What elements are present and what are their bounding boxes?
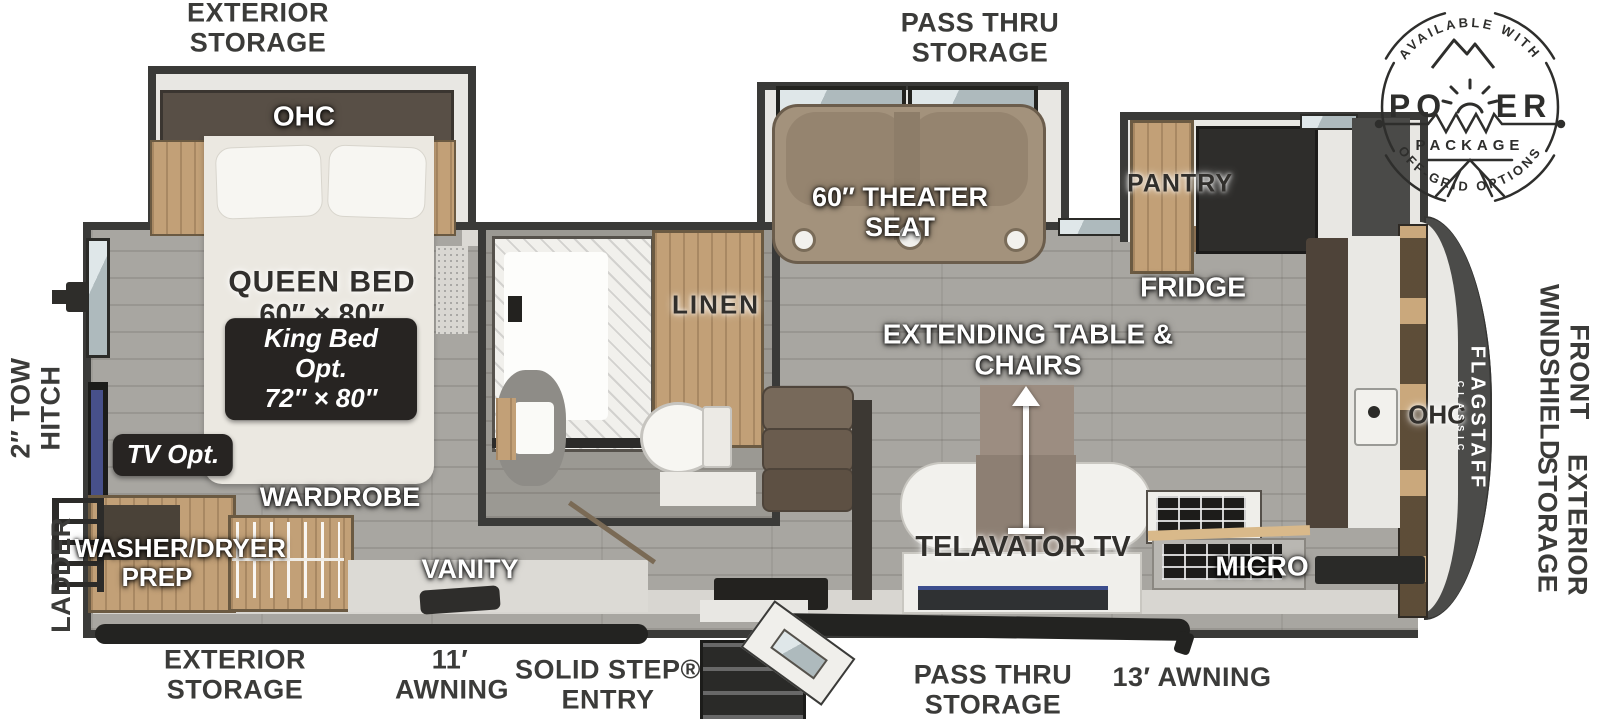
shower-head-icon — [508, 296, 522, 322]
nightstand-left — [150, 140, 208, 236]
vanity-label: VANITY — [421, 554, 518, 584]
floorplan-canvas: OHC QUEEN BED 60″ × 80″ King Bed Opt. 72… — [0, 0, 1600, 719]
bedroom-window — [86, 238, 110, 358]
svg-text:AVAILABLE WITH: AVAILABLE WITH — [1396, 15, 1545, 62]
extending-table-label: EXTENDING TABLE & CHAIRS — [868, 319, 1188, 382]
front-section-window — [1300, 114, 1358, 130]
linen-label: LINEN — [672, 291, 760, 320]
micro-label: MICRO — [1215, 550, 1308, 581]
awning-13-label: 13′ AWNING — [1072, 663, 1312, 693]
kitchen-counter-dark — [1306, 238, 1352, 528]
tow-hitch-label: 2″ TOW HITCH — [6, 348, 65, 468]
awning-11-label: 11′ AWNING — [395, 645, 505, 704]
brand-series: CLASSIC — [1456, 346, 1466, 490]
mountains-icon — [1432, 40, 1494, 68]
awning-bar-left — [95, 624, 648, 644]
toilet-tank — [702, 406, 732, 468]
theater-seat-label: 60″ THEATER SEAT — [775, 182, 1025, 242]
kitchen-window — [1058, 218, 1124, 236]
tow-hitch-stub — [52, 290, 70, 304]
pantry-label: PANTRY — [1127, 170, 1233, 198]
exterior-storage-top-label: EXTERIOR STORAGE — [168, 0, 348, 58]
sun-icon — [1443, 80, 1497, 112]
brand-block: FLAGSTAFF CLASSIC — [1456, 346, 1489, 490]
ohc-bedroom-label: OHC — [273, 100, 335, 131]
badge-word-left: PO — [1389, 88, 1447, 124]
toilet-bench — [660, 472, 756, 506]
kitchen-counter-white — [1348, 236, 1400, 528]
bedroom-rug — [436, 246, 468, 334]
ladder-label: LADDER — [47, 505, 77, 645]
badge-word-right: ER — [1496, 88, 1552, 124]
king-bed-option-badge: King Bed Opt. 72″ × 80″ — [225, 318, 417, 420]
stair-step-2 — [762, 428, 854, 472]
extend-arrow-head — [1012, 386, 1040, 406]
telavator-tv-screen — [918, 586, 1108, 610]
pass-thru-top-label: PASS THRU STORAGE — [880, 8, 1080, 67]
kitchen-faucet-icon — [1368, 406, 1380, 418]
tv-option-badge: TV Opt. — [113, 434, 233, 476]
brand-name: FLAGSTAFF — [1466, 346, 1489, 490]
stair-step-1 — [762, 386, 854, 432]
queen-bed-label: QUEEN BED — [228, 266, 415, 299]
pillow-left — [215, 144, 323, 220]
bedroom-tv-screen — [91, 390, 103, 508]
washer-dryer-label: WASHER/DRYER PREP — [75, 534, 240, 592]
front-windshield-label: FRONT WINDSHIELD — [1534, 277, 1593, 467]
power-package-badge: PO ER PACKAGE AVAILABLE WITH OFF-GRID OP… — [1372, 2, 1568, 214]
stair-step-3 — [762, 468, 854, 512]
telavator-tv-label: TELAVATOR TV — [915, 532, 1130, 564]
fridge-label: FRIDGE — [1140, 271, 1246, 302]
king-bed-option-size: 72″ × 80″ — [239, 384, 403, 414]
bath-stool — [496, 398, 516, 460]
wardrobe-label: WARDROBE — [260, 482, 421, 512]
extend-arrow-shaft — [1023, 402, 1029, 528]
king-bed-option-name: King Bed Opt. — [239, 324, 403, 384]
stair-wall — [852, 400, 872, 600]
badge-arc-top-text: AVAILABLE WITH — [1396, 15, 1545, 62]
exterior-storage-bottom-label: EXTERIOR STORAGE — [150, 645, 320, 704]
kitchen-vent — [1315, 556, 1425, 584]
bath-sink-basin — [514, 402, 554, 454]
solid-step-entry-label: SOLID STEP® ENTRY — [503, 655, 713, 714]
exterior-storage-right-label: EXTERIOR STORAGE — [1532, 450, 1591, 600]
badge-package-text: PACKAGE — [1416, 137, 1525, 154]
pillow-right — [327, 144, 427, 219]
pass-thru-bottom-label: PASS THRU STORAGE — [898, 660, 1088, 719]
